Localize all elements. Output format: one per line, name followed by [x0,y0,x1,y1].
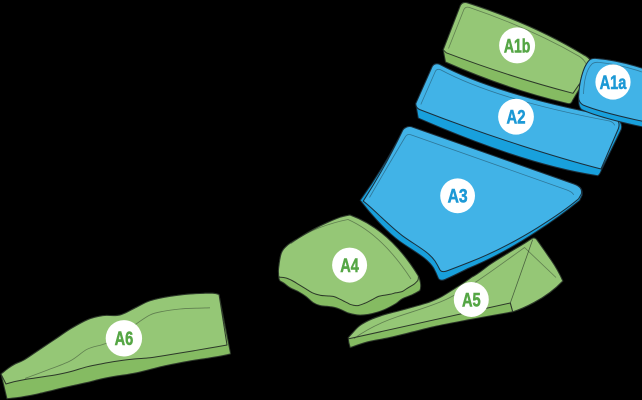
svg-text:A4: A4 [340,256,359,277]
svg-text:A5: A5 [462,290,481,311]
svg-text:A1a: A1a [600,73,627,94]
svg-text:A2: A2 [507,108,526,129]
svg-text:A3: A3 [448,187,468,208]
svg-text:A1b: A1b [504,36,531,57]
svg-text:A6: A6 [115,329,134,350]
